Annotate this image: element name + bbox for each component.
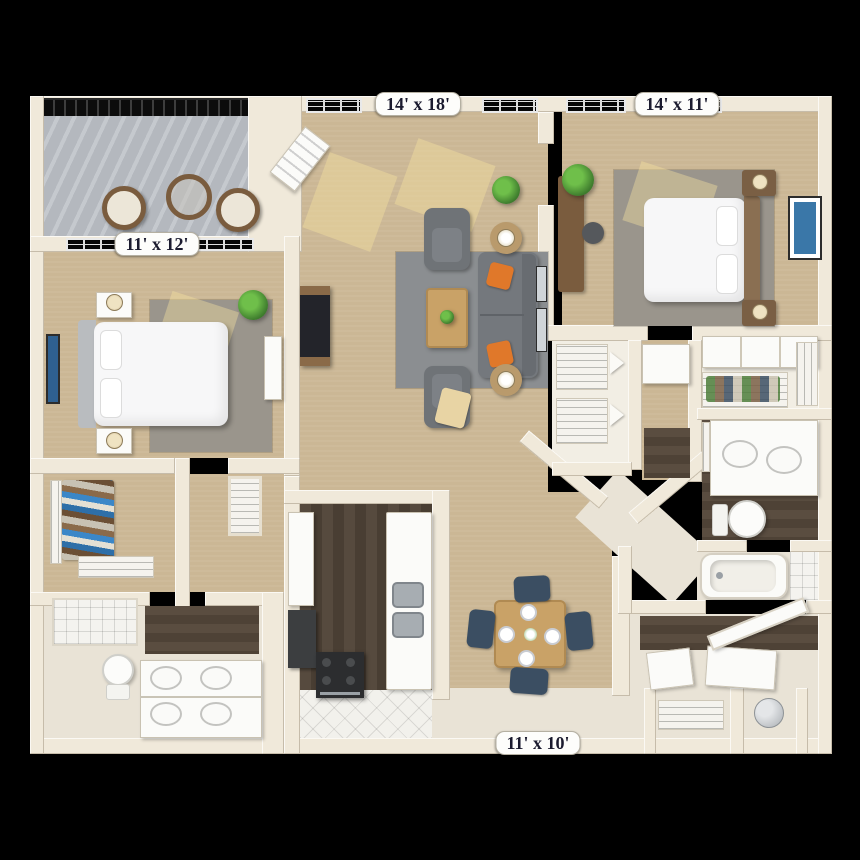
dining-chair-top bbox=[513, 575, 550, 603]
dining-chair-bottom bbox=[509, 667, 549, 696]
bathroom1-sink-4 bbox=[200, 702, 232, 726]
wall-bottom bbox=[30, 738, 832, 754]
balcony-chair-1 bbox=[102, 186, 146, 230]
hallway2-cabinet bbox=[642, 344, 690, 384]
wall-bedroom1-living bbox=[284, 236, 300, 476]
wall-bathroom2-tub-b bbox=[790, 540, 832, 552]
dining-chair-right bbox=[564, 611, 594, 652]
wall-bedroom2-bottom-a bbox=[538, 325, 648, 341]
living-wall-art-1 bbox=[536, 266, 547, 302]
wall-closet3-divider-c bbox=[796, 688, 808, 754]
bedroom1-lamp-1 bbox=[106, 294, 123, 311]
bedroom2-headboard bbox=[744, 196, 760, 304]
bathroom2-towel-rack bbox=[702, 422, 710, 472]
dining-chair-left bbox=[466, 609, 496, 650]
wall-kitchen-right bbox=[432, 490, 450, 700]
wall-kitchen-top bbox=[284, 490, 450, 504]
tv-console bbox=[300, 286, 330, 366]
living-corner-plant bbox=[492, 176, 520, 204]
kitchen-cabinet-left bbox=[288, 512, 314, 606]
dining-plate-3 bbox=[544, 628, 561, 645]
bedroom2-lamp-1 bbox=[752, 174, 768, 190]
floor-plan-image: 14' x 18' 14' x 11' 11' x 12' 11' x 10' bbox=[0, 0, 860, 860]
closet1-rod bbox=[50, 480, 62, 564]
kitchen-burner-2 bbox=[346, 658, 355, 667]
toilet2-tank bbox=[712, 504, 728, 536]
entry-open-door-2 bbox=[705, 646, 778, 691]
wall-closet3-divider-a bbox=[644, 688, 656, 754]
pantry-door-2 bbox=[610, 404, 624, 426]
closet1-clothes bbox=[62, 480, 114, 560]
pantry-shelf-1 bbox=[556, 344, 608, 390]
bedroom1-pillow-1 bbox=[100, 330, 122, 370]
bedroom1-lamp-2 bbox=[106, 432, 123, 449]
entry-closet-shelf bbox=[658, 700, 724, 730]
balcony-chair-2 bbox=[216, 188, 260, 232]
wall-closet3-divider-b bbox=[730, 688, 744, 754]
wall-left bbox=[30, 96, 44, 754]
wall-bathroom2-tub-a bbox=[697, 540, 747, 552]
bathroom1-wood-strip bbox=[145, 606, 259, 654]
dining-centerpiece-flowers bbox=[524, 628, 537, 641]
entry-open-door-1 bbox=[646, 647, 694, 690]
bathroom1-mirror-line bbox=[140, 696, 262, 698]
tv-console-wood-bottom bbox=[300, 357, 330, 366]
pantry-shelf-2 bbox=[556, 398, 608, 444]
kitchen-refrigerator bbox=[288, 610, 316, 668]
bathroom2-sink-2 bbox=[766, 446, 802, 474]
bedroom2-pillow-2 bbox=[716, 254, 738, 294]
bedroom1-dresser bbox=[264, 336, 282, 400]
bedroom2-plant bbox=[562, 164, 594, 196]
bedroom2-pillow-1 bbox=[716, 206, 738, 246]
living-room-dimension-label: 14' x 18' bbox=[375, 92, 461, 116]
wall-bedroom1-bottom-b bbox=[228, 458, 300, 474]
sofa-cushion-line bbox=[480, 314, 524, 316]
closet2-clothes bbox=[706, 376, 780, 402]
bedroom2-desk-chair bbox=[582, 222, 604, 244]
wall-tub-entry-a bbox=[620, 600, 706, 614]
wall-living-bedroom2-a bbox=[538, 112, 554, 144]
living-wall-art-2 bbox=[536, 308, 547, 352]
balcony-table bbox=[166, 174, 212, 220]
side-table-bottom-lamp bbox=[497, 371, 515, 389]
pantry-door-1 bbox=[610, 352, 624, 374]
bedroom2-window-1 bbox=[566, 98, 626, 113]
tv-console-wood-top bbox=[300, 286, 330, 295]
bedroom2-wall-art bbox=[788, 196, 822, 260]
balcony-dimension-label: 11' x 12' bbox=[114, 232, 199, 256]
kitchen-burner-3 bbox=[322, 676, 331, 685]
side-table-top-lamp bbox=[497, 229, 515, 247]
bathroom2-sink-1 bbox=[722, 440, 758, 468]
bathroom1-sink-2 bbox=[200, 666, 232, 690]
bedroom1-pillow-2 bbox=[100, 378, 122, 418]
closet1-shelf bbox=[78, 556, 154, 578]
toilet1-bowl bbox=[102, 654, 134, 686]
wall-pantry-right bbox=[628, 340, 642, 470]
bathroom1-sink-3 bbox=[150, 702, 182, 726]
bedroom2-dimension-label: 14' x 11' bbox=[634, 92, 719, 116]
kitchen-burner-1 bbox=[322, 658, 331, 667]
hallway2-wood-patch bbox=[644, 428, 690, 478]
wall-closet1-divider bbox=[175, 458, 190, 608]
armchair-top-seat bbox=[432, 228, 462, 262]
balcony-railing bbox=[44, 98, 248, 116]
wall-bathroom1-kitchen bbox=[262, 592, 284, 754]
wall-pantry-bottom bbox=[552, 462, 632, 476]
wall-entry-left bbox=[618, 546, 632, 614]
living-window-1 bbox=[306, 98, 362, 113]
water-heater bbox=[754, 698, 784, 728]
dining-plate-4 bbox=[518, 650, 535, 667]
sofa-back bbox=[522, 254, 536, 376]
shower bbox=[52, 598, 138, 646]
wall-right bbox=[818, 96, 832, 754]
kitchen-sink-1 bbox=[392, 582, 424, 608]
closet2-side-rack bbox=[796, 342, 818, 406]
kitchen-burner-4 bbox=[346, 676, 355, 685]
kitchen-range-handle bbox=[320, 692, 360, 695]
wall-tub-entry-b bbox=[806, 600, 832, 614]
bedroom2-lamp-2 bbox=[752, 304, 768, 320]
dining-room-dimension-label: 11' x 10' bbox=[495, 731, 580, 755]
living-window-3 bbox=[482, 98, 538, 113]
coffee-table-plant bbox=[440, 310, 454, 324]
linen-closet bbox=[228, 476, 262, 536]
bathtub-drain bbox=[716, 572, 723, 579]
bedroom1-wall-art bbox=[46, 334, 60, 404]
tub-tile-wall bbox=[790, 552, 818, 600]
wall-bedroom1-bottom-a bbox=[30, 458, 175, 474]
wall-closet2-bathroom2 bbox=[697, 408, 832, 420]
dining-plate-1 bbox=[520, 604, 537, 621]
toilet1-tank bbox=[106, 684, 130, 700]
kitchen-sink-2 bbox=[392, 612, 424, 638]
dining-plate-2 bbox=[498, 626, 515, 643]
toilet2-bowl bbox=[728, 500, 766, 538]
bathroom1-sink-1 bbox=[150, 666, 182, 690]
bedroom1-plant bbox=[238, 290, 268, 320]
